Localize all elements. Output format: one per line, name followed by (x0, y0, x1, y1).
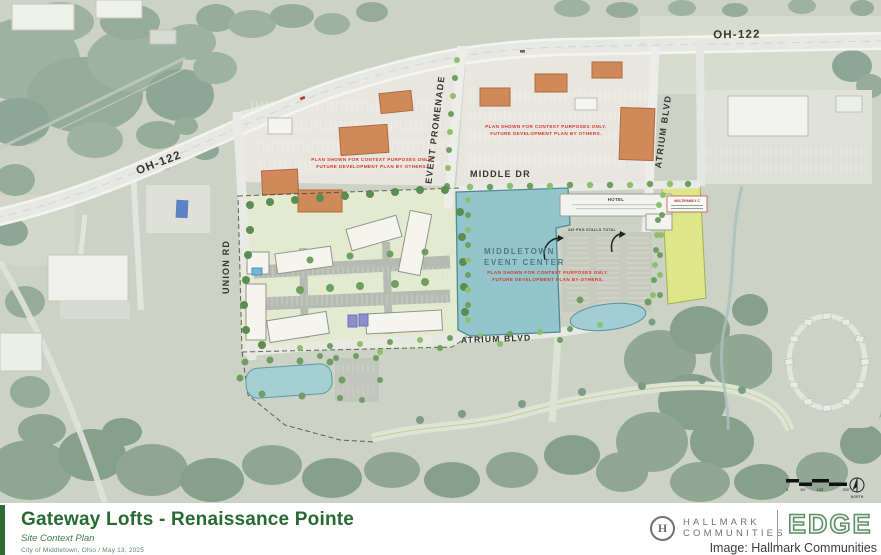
road-label-oh122-north: OH-122 (713, 29, 761, 42)
hallmark-communities-logo: H HALLMARK COMMUNITIES (650, 516, 786, 541)
neighborhood (772, 296, 881, 428)
page-meta: City of Middletown, Ohio / May 13, 2025 (21, 547, 354, 554)
house (861, 358, 870, 365)
multifamily-label: MULTIFAMILY C (674, 199, 700, 203)
disclaimer-center-line2: FUTURE DEVELOPMENT PLAN BY OTHERS. (492, 277, 604, 282)
page-title: Gateway Lofts - Renaissance Pointe (21, 510, 354, 530)
road-label-middle-dr: MIDDLE DR (470, 169, 531, 179)
house (804, 319, 813, 326)
scale-200: 200' (842, 488, 849, 492)
house (856, 336, 865, 343)
house (842, 399, 850, 406)
event-center-label-line2: EVENT CENTER (484, 258, 565, 267)
pond (245, 363, 333, 399)
scale-100: 100' (816, 488, 823, 492)
disclaimer-east-line1: PLAN SHOWN FOR CONTEXT PURPOSES ONLY. (485, 124, 607, 129)
event-center-label-line1: MIDDLETOWN (484, 247, 555, 256)
page: OH-122 OH-122 UNION RD EVENT PROMENADE M… (0, 0, 881, 555)
map-canvas: OH-122 OH-122 UNION RD EVENT PROMENADE M… (0, 0, 881, 503)
house (785, 358, 794, 365)
scale-0: 0 (786, 488, 788, 492)
house (804, 399, 812, 405)
disclaimer-west-line2: FUTURE DEVELOPMENT PLAN BY OTHERS. (316, 164, 428, 169)
disclaimer-west-line1: PLAN SHOWN FOR CONTEXT PURPOSES ONLY. (311, 157, 433, 162)
scale-50: 50' (801, 488, 806, 492)
house (856, 382, 864, 388)
image-credit: Image: Hallmark Communities (710, 541, 877, 555)
hallmark-logo-line2: COMMUNITIES (683, 529, 786, 540)
hotel-label: HOTEL (608, 197, 624, 202)
house (823, 313, 832, 320)
site-context-plan-image: OH-122 OH-122 UNION RD EVENT PROMENADE M… (0, 0, 881, 503)
stall-count-label: 330 PKG STALLS TOTAL (568, 228, 617, 232)
disclaimer-east-line2: FUTURE DEVELOPMENT PLAN BY OTHERS. (490, 131, 602, 136)
house (823, 404, 832, 411)
house (790, 336, 798, 342)
page-subtitle: Site Context Plan (21, 533, 354, 544)
house (842, 319, 850, 325)
accent-bar (0, 505, 5, 555)
edge-logo: EDGE (788, 509, 873, 540)
house (790, 382, 798, 389)
disclaimer-center-line1: PLAN SHOWN FOR CONTEXT PURPOSES ONLY. (487, 270, 609, 275)
road-label-union-rd: UNION RD (221, 240, 231, 294)
north-label: NORTH (851, 495, 864, 499)
hallmark-logo-line1: HALLMARK (683, 518, 786, 529)
hallmark-monogram-icon: H (650, 516, 675, 541)
